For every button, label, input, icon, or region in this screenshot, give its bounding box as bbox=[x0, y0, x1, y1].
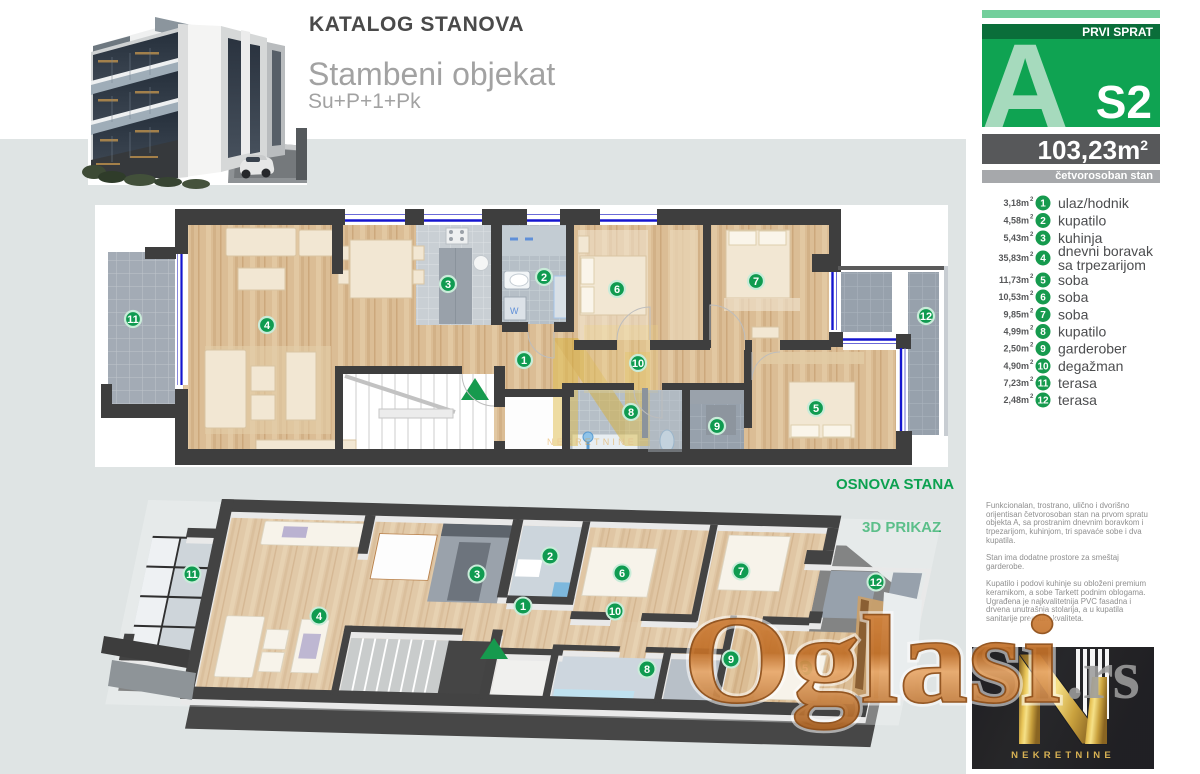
svg-text:2: 2 bbox=[1030, 326, 1034, 332]
svg-text:8: 8 bbox=[628, 407, 634, 419]
svg-text:7: 7 bbox=[753, 276, 759, 288]
svg-text:NEKRETNINE: NEKRETNINE bbox=[547, 437, 637, 447]
svg-text:7: 7 bbox=[1040, 310, 1046, 321]
svg-text:4: 4 bbox=[316, 611, 323, 623]
svg-text:5: 5 bbox=[813, 403, 819, 415]
svg-text:12: 12 bbox=[1037, 396, 1049, 407]
svg-text:2: 2 bbox=[1030, 360, 1034, 366]
svg-text:soba: soba bbox=[1058, 307, 1089, 323]
svg-text:3,18m: 3,18m bbox=[1003, 198, 1029, 208]
svg-text:2: 2 bbox=[1030, 309, 1034, 315]
svg-text:2: 2 bbox=[1030, 197, 1034, 203]
svg-text:terasa: terasa bbox=[1058, 375, 1097, 391]
svg-text:Oglasi: Oglasi bbox=[683, 591, 1061, 730]
svg-text:1: 1 bbox=[520, 601, 526, 613]
svg-text:12: 12 bbox=[920, 311, 932, 323]
svg-text:4,90m: 4,90m bbox=[1003, 361, 1029, 371]
svg-text:2: 2 bbox=[1030, 215, 1034, 221]
svg-text:2: 2 bbox=[1030, 377, 1034, 383]
svg-text:10: 10 bbox=[632, 358, 644, 370]
svg-text:2: 2 bbox=[547, 551, 553, 563]
svg-text:4,99m: 4,99m bbox=[1003, 327, 1029, 337]
svg-text:5,43m: 5,43m bbox=[1003, 233, 1029, 243]
svg-text:3: 3 bbox=[1040, 234, 1046, 245]
svg-text:5: 5 bbox=[1040, 276, 1046, 287]
svg-text:.rs: .rs bbox=[1066, 637, 1139, 714]
svg-text:2: 2 bbox=[1030, 343, 1034, 349]
svg-text:7,23m: 7,23m bbox=[1003, 378, 1029, 388]
svg-text:terasa: terasa bbox=[1058, 392, 1097, 408]
svg-text:11: 11 bbox=[1038, 379, 1049, 390]
svg-text:2: 2 bbox=[1030, 274, 1034, 280]
svg-text:10,53m: 10,53m bbox=[998, 292, 1029, 302]
svg-text:1: 1 bbox=[521, 355, 527, 367]
svg-text:9: 9 bbox=[1040, 344, 1046, 355]
svg-text:3: 3 bbox=[445, 279, 451, 291]
svg-text:9,85m: 9,85m bbox=[1003, 310, 1029, 320]
svg-text:2: 2 bbox=[1030, 232, 1034, 238]
svg-text:10: 10 bbox=[1037, 362, 1049, 373]
svg-text:ulaz/hodnik: ulaz/hodnik bbox=[1058, 195, 1130, 211]
svg-text:2: 2 bbox=[1030, 291, 1034, 297]
svg-text:W: W bbox=[510, 306, 519, 316]
svg-text:6: 6 bbox=[1040, 293, 1046, 304]
svg-text:4,58m: 4,58m bbox=[1003, 216, 1029, 226]
svg-text:4: 4 bbox=[264, 320, 271, 332]
svg-text:2: 2 bbox=[1030, 394, 1034, 400]
svg-text:4: 4 bbox=[1040, 254, 1046, 265]
svg-text:11,73m: 11,73m bbox=[999, 275, 1029, 285]
svg-text:kupatilo: kupatilo bbox=[1058, 213, 1106, 229]
svg-text:2: 2 bbox=[541, 272, 547, 284]
svg-text:kupatilo: kupatilo bbox=[1058, 324, 1106, 340]
svg-text:6: 6 bbox=[614, 284, 620, 296]
svg-text:soba: soba bbox=[1058, 272, 1089, 288]
svg-text:degažman: degažman bbox=[1058, 358, 1123, 374]
svg-text:2,48m: 2,48m bbox=[1003, 395, 1029, 405]
svg-text:9: 9 bbox=[714, 421, 720, 433]
svg-text:1: 1 bbox=[1040, 199, 1046, 210]
svg-text:11: 11 bbox=[127, 314, 139, 326]
svg-text:soba: soba bbox=[1058, 289, 1089, 305]
svg-text:sa trpezarijom: sa trpezarijom bbox=[1058, 257, 1146, 273]
svg-text:2,50m: 2,50m bbox=[1003, 344, 1029, 354]
svg-text:2: 2 bbox=[1040, 216, 1046, 227]
svg-text:2: 2 bbox=[1030, 252, 1034, 258]
svg-text:11: 11 bbox=[186, 569, 198, 581]
svg-text:3: 3 bbox=[474, 569, 480, 581]
svg-text:8: 8 bbox=[1040, 327, 1046, 338]
svg-text:35,83m: 35,83m bbox=[998, 253, 1029, 263]
svg-text:garderober: garderober bbox=[1058, 341, 1127, 357]
